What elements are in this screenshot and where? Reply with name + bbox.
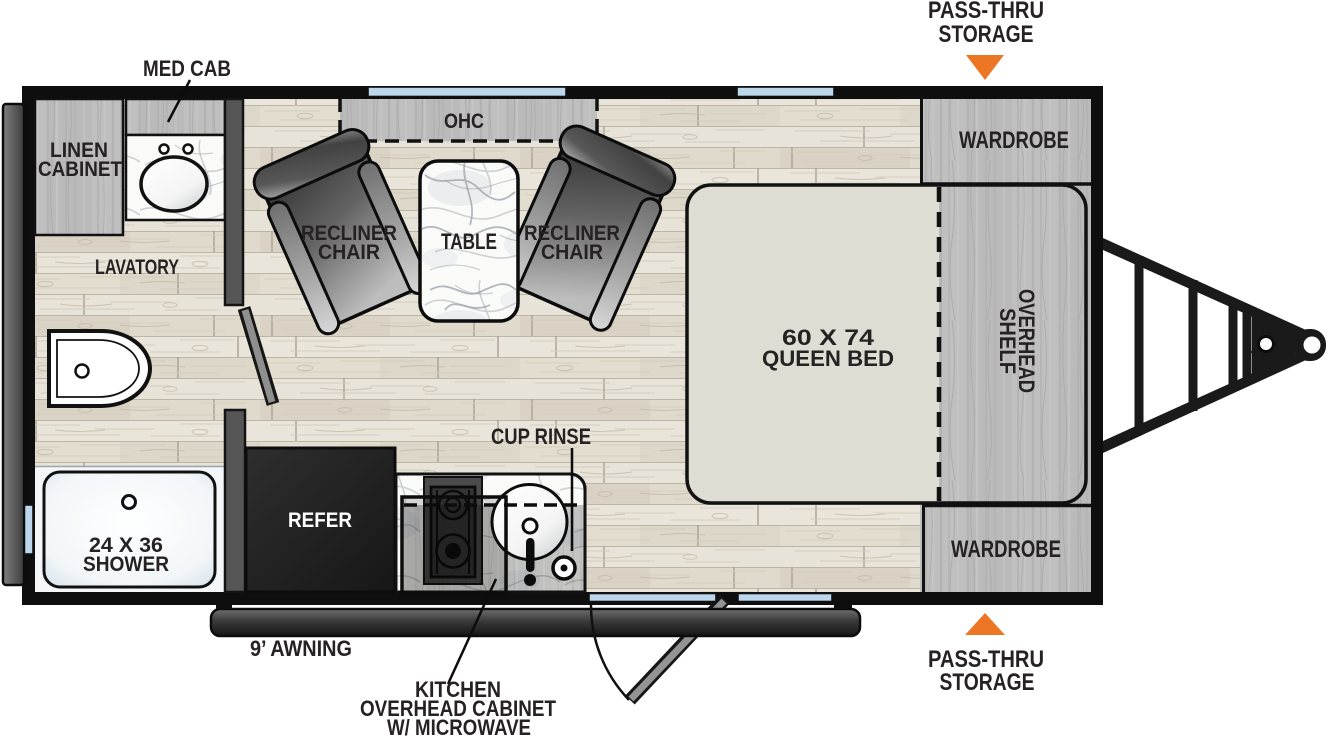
svg-text:QUEEN BED: QUEEN BED <box>762 346 894 371</box>
svg-text:W/ MICROWAVE: W/ MICROWAVE <box>387 715 531 740</box>
svg-text:CABINET: CABINET <box>38 158 122 181</box>
svg-text:9’ AWNING: 9’ AWNING <box>250 636 352 661</box>
svg-text:SHOWER: SHOWER <box>83 553 169 576</box>
svg-text:STORAGE: STORAGE <box>939 21 1034 48</box>
svg-text:CUP RINSE: CUP RINSE <box>491 424 591 449</box>
svg-text:CHAIR: CHAIR <box>541 241 603 264</box>
svg-text:STORAGE: STORAGE <box>940 669 1035 696</box>
svg-text:OHC: OHC <box>444 110 484 133</box>
svg-text:SHELF: SHELF <box>995 308 1020 374</box>
svg-text:LAVATORY: LAVATORY <box>95 256 179 279</box>
svg-text:MED CAB: MED CAB <box>143 56 231 81</box>
svg-text:CHAIR: CHAIR <box>318 241 380 264</box>
svg-text:REFER: REFER <box>288 509 352 532</box>
svg-text:TABLE: TABLE <box>441 229 497 254</box>
svg-text:WARDROBE: WARDROBE <box>951 536 1061 563</box>
svg-text:WARDROBE: WARDROBE <box>959 127 1069 154</box>
